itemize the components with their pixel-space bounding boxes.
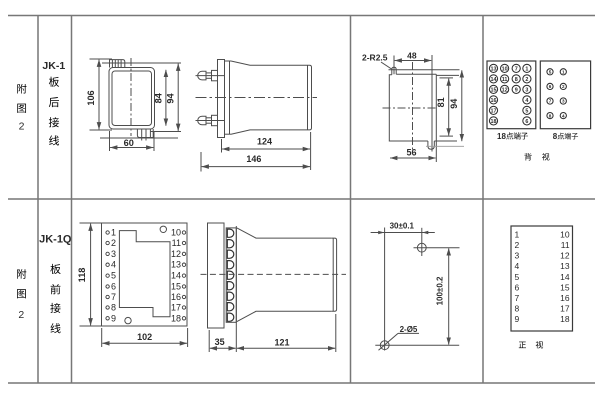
- svg-text:2: 2: [525, 77, 528, 83]
- svg-text:4: 4: [111, 260, 116, 270]
- svg-text:17: 17: [491, 108, 497, 114]
- svg-text:4: 4: [525, 98, 528, 104]
- svg-text:3: 3: [562, 99, 565, 104]
- svg-text:JK-1Q: JK-1Q: [39, 234, 72, 246]
- svg-text:14: 14: [491, 77, 497, 83]
- svg-text:124: 124: [257, 137, 272, 147]
- svg-text:56: 56: [406, 147, 416, 157]
- svg-text:9: 9: [515, 314, 520, 324]
- svg-text:7: 7: [515, 293, 520, 303]
- svg-text:48: 48: [407, 51, 417, 61]
- svg-text:1: 1: [525, 66, 528, 72]
- svg-text:81: 81: [436, 97, 446, 107]
- svg-text:9: 9: [515, 87, 518, 93]
- svg-text:5: 5: [111, 271, 116, 281]
- svg-text:13: 13: [560, 261, 570, 271]
- svg-text:18: 18: [497, 132, 506, 141]
- svg-text:100±0.2: 100±0.2: [435, 276, 444, 305]
- svg-text:12: 12: [502, 87, 508, 93]
- svg-text:1: 1: [515, 229, 520, 239]
- svg-text:2-Ø5: 2-Ø5: [400, 325, 418, 334]
- svg-text:6: 6: [525, 119, 528, 125]
- svg-text:94: 94: [166, 93, 176, 104]
- svg-text:JK-1: JK-1: [42, 60, 65, 72]
- svg-text:17: 17: [171, 303, 181, 313]
- svg-text:2: 2: [111, 238, 116, 248]
- svg-text:12: 12: [171, 249, 181, 259]
- svg-text:106: 106: [86, 90, 96, 105]
- svg-text:30±0.1: 30±0.1: [390, 221, 415, 230]
- svg-text:2: 2: [562, 84, 565, 89]
- svg-text:102: 102: [137, 332, 152, 342]
- svg-text:15: 15: [560, 282, 570, 292]
- svg-text:6: 6: [549, 84, 552, 89]
- svg-text:9: 9: [111, 313, 116, 323]
- svg-text:13: 13: [491, 66, 497, 72]
- svg-text:16: 16: [491, 98, 497, 104]
- svg-text:2: 2: [19, 121, 25, 133]
- svg-text:3: 3: [111, 249, 116, 259]
- svg-text:17: 17: [560, 304, 570, 314]
- svg-text:5: 5: [525, 108, 528, 114]
- svg-text:1: 1: [111, 228, 116, 238]
- svg-text:6: 6: [515, 282, 520, 292]
- svg-text:16: 16: [560, 293, 570, 303]
- svg-text:4: 4: [562, 113, 565, 118]
- svg-text:3: 3: [515, 251, 520, 261]
- svg-text:14: 14: [560, 272, 570, 282]
- svg-text:12: 12: [560, 251, 570, 261]
- svg-text:8: 8: [553, 132, 558, 141]
- svg-text:11: 11: [502, 77, 508, 83]
- svg-text:7: 7: [549, 99, 552, 104]
- svg-text:7: 7: [111, 292, 116, 302]
- svg-text:18: 18: [560, 314, 570, 324]
- svg-text:2: 2: [515, 240, 520, 250]
- svg-text:11: 11: [561, 240, 570, 250]
- svg-text:118: 118: [77, 268, 87, 283]
- svg-text:8: 8: [111, 303, 116, 313]
- svg-text:35: 35: [215, 337, 225, 347]
- svg-text:4: 4: [515, 261, 520, 271]
- svg-text:146: 146: [246, 154, 261, 164]
- svg-text:8: 8: [549, 113, 552, 118]
- svg-text:8: 8: [515, 304, 520, 314]
- svg-text:2: 2: [18, 309, 24, 321]
- svg-text:3: 3: [525, 87, 528, 93]
- svg-text:2-R2.5: 2-R2.5: [362, 53, 388, 63]
- svg-text:18: 18: [491, 119, 497, 125]
- svg-text:121: 121: [274, 338, 289, 348]
- svg-text:18: 18: [171, 313, 181, 323]
- svg-text:15: 15: [171, 282, 181, 292]
- svg-text:94: 94: [449, 99, 459, 109]
- svg-text:10: 10: [171, 228, 181, 238]
- svg-text:6: 6: [111, 282, 116, 292]
- svg-text:5: 5: [515, 272, 520, 282]
- svg-text:60: 60: [124, 138, 134, 148]
- svg-text:8: 8: [515, 77, 518, 83]
- svg-text:84: 84: [153, 92, 163, 103]
- svg-text:13: 13: [171, 260, 181, 270]
- svg-text:16: 16: [171, 292, 181, 302]
- svg-text:15: 15: [491, 87, 497, 93]
- svg-text:7: 7: [515, 66, 518, 72]
- svg-text:11: 11: [172, 238, 181, 248]
- svg-text:1: 1: [562, 70, 565, 75]
- svg-text:10: 10: [560, 229, 570, 239]
- svg-text:14: 14: [171, 271, 181, 281]
- svg-text:10: 10: [502, 66, 508, 72]
- svg-text:5: 5: [549, 70, 552, 75]
